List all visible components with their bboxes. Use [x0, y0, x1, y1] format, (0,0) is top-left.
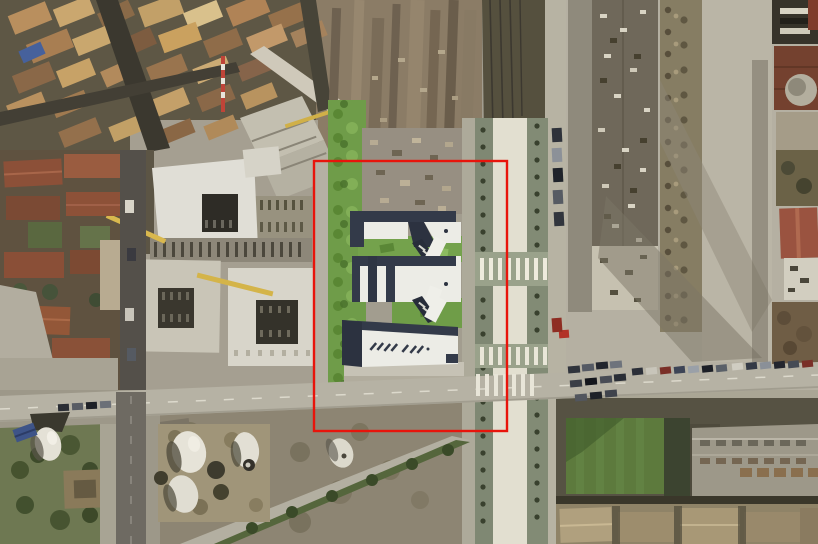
- scrub-mottle: [290, 442, 310, 462]
- screenshot-root: [0, 0, 818, 544]
- scrub-dot: [665, 183, 671, 189]
- white-house-mark: [800, 278, 809, 283]
- park-tree: [11, 461, 29, 479]
- edge-roof-bar: [780, 28, 810, 34]
- shed-speck: [600, 14, 607, 18]
- render-building-c-box: [446, 354, 458, 363]
- rubble-speck: [415, 200, 425, 205]
- shed-speck-dark: [634, 54, 641, 59]
- parked-car: [552, 148, 563, 163]
- park-tree: [82, 507, 98, 523]
- parked-car-row: [688, 365, 700, 373]
- parked-car: [554, 212, 565, 227]
- tree-blob: [42, 284, 58, 300]
- tree-dot: [534, 310, 539, 315]
- tree-dot: [480, 246, 485, 251]
- zebra-stripe: [476, 374, 480, 396]
- scrub-dot: [680, 66, 687, 73]
- park-tree: [16, 496, 34, 514]
- roof-window: [796, 458, 806, 464]
- hedge-tree: [366, 474, 378, 486]
- grid-tick: [260, 200, 263, 210]
- parked-car: [575, 393, 588, 401]
- tree-dot: [534, 412, 539, 417]
- render-building-a-roof: [364, 222, 408, 239]
- scrub-dot: [680, 91, 687, 98]
- boulevard-roadway: [493, 118, 527, 544]
- tree-blob: [154, 471, 168, 485]
- zebra-stripe: [498, 258, 502, 280]
- parked-car: [570, 379, 583, 387]
- railyard-rubble: [398, 58, 405, 62]
- grid-tick: [163, 242, 166, 257]
- rubble-speck: [430, 155, 438, 160]
- hedge-tree: [406, 458, 418, 470]
- parked-car: [72, 403, 83, 411]
- scrub-dot-light: [674, 98, 679, 103]
- courtyard-window: [278, 330, 281, 337]
- grid-tick: [199, 242, 202, 257]
- grass-mottle: [333, 109, 343, 119]
- roof-vent: [444, 282, 448, 286]
- courtyard-window: [178, 314, 181, 322]
- parked-car: [86, 402, 97, 410]
- house-roof-south: [800, 508, 818, 544]
- rubble-speck: [392, 150, 402, 156]
- grass-mottle: [340, 220, 348, 228]
- shed-speck: [602, 184, 609, 188]
- parked-car: [125, 308, 134, 321]
- scrub-dot-light: [674, 182, 679, 187]
- courtyard-window: [260, 306, 263, 313]
- shed-shadow: [568, 0, 592, 312]
- shed-speck-dark: [610, 38, 617, 43]
- roof-window: [700, 458, 710, 464]
- courtyard-window: [260, 330, 263, 337]
- park-courtyard-inner: [74, 480, 97, 499]
- rubble-speck: [438, 206, 446, 211]
- facade-speck: [234, 350, 238, 356]
- tree-dot: [480, 178, 485, 183]
- roof-window: [748, 458, 758, 464]
- grid-tick: [276, 222, 279, 232]
- shed-speck: [598, 128, 605, 132]
- roof-vent: [444, 229, 448, 233]
- facade-speck: [258, 350, 262, 356]
- grid-tick: [253, 242, 256, 257]
- scrub-dot-light: [674, 210, 679, 215]
- tree-dot: [534, 327, 539, 332]
- shed-speck: [604, 54, 611, 58]
- parked-car-row: [760, 361, 772, 369]
- grid-tick: [292, 200, 295, 210]
- parked-car-row: [788, 360, 800, 368]
- grid-tick: [289, 242, 292, 257]
- grid-tick: [154, 242, 157, 257]
- shed-speck-dark: [600, 78, 607, 83]
- grass-mottle: [346, 122, 358, 134]
- tree-dot: [534, 480, 539, 485]
- tree-dot: [534, 225, 539, 230]
- roof-window: [748, 440, 758, 446]
- roof-ridge: [66, 204, 122, 206]
- grid-tick: [226, 242, 229, 257]
- parked-car: [100, 401, 111, 409]
- zebra-stripe: [543, 258, 547, 280]
- tree-dot: [480, 297, 485, 302]
- scrub-dot: [680, 241, 687, 248]
- tree-dot: [480, 331, 485, 336]
- shed-speck: [620, 28, 627, 32]
- house-roof: [6, 196, 60, 220]
- crane-mast-stripe: [221, 64, 225, 70]
- grid-tick: [172, 242, 175, 257]
- tree-dot: [480, 127, 485, 132]
- parked-car: [127, 248, 136, 261]
- scrub-dot: [665, 51, 671, 57]
- roof-vent: [427, 348, 430, 351]
- rubble-speck: [376, 170, 385, 175]
- courtyard-window: [213, 220, 216, 228]
- scrub-dot: [665, 227, 671, 233]
- grid-tick: [190, 242, 193, 257]
- parked-car: [596, 361, 609, 369]
- grid-tick: [284, 222, 287, 232]
- courtyard-window: [170, 292, 173, 300]
- shed-speck: [614, 94, 621, 98]
- house-roof: [64, 154, 120, 178]
- parked-car: [553, 190, 564, 205]
- roof-ridge: [680, 524, 740, 526]
- grid-tick: [300, 222, 303, 232]
- scrub-dot-light: [674, 238, 679, 243]
- tree-dot: [480, 450, 485, 455]
- courtyard-garden: [28, 222, 62, 248]
- shed-speck: [640, 168, 646, 172]
- courtyard-window: [170, 314, 173, 322]
- tree-dot: [480, 195, 485, 200]
- grid-tick: [300, 200, 303, 210]
- shed-speck: [630, 68, 637, 72]
- hedge-tree: [286, 506, 298, 518]
- shed-speck: [622, 148, 629, 152]
- field-mottle: [249, 498, 263, 512]
- tree-dot: [534, 429, 539, 434]
- tree-dot: [534, 157, 539, 162]
- hedge-tree: [442, 444, 454, 456]
- zebra-stripe: [516, 347, 520, 365]
- grass-mottle: [340, 300, 348, 308]
- park-tree: [60, 435, 80, 455]
- zebra-stripe: [534, 258, 538, 280]
- shed-speck-dark: [630, 188, 637, 193]
- facade-speck: [246, 350, 250, 356]
- scrub-dot-light: [674, 14, 679, 19]
- parked-car: [127, 348, 136, 361]
- roof-window: [780, 458, 790, 464]
- white-house-mark: [788, 288, 795, 292]
- tree-dot: [534, 463, 539, 468]
- parked-car: [590, 391, 603, 399]
- lawn-stripe: [636, 418, 644, 494]
- zebra-stripe: [494, 374, 498, 396]
- rubble-speck: [400, 180, 410, 186]
- rubble-speck: [442, 186, 451, 191]
- shed-speck: [628, 204, 635, 208]
- tree-dot: [480, 518, 485, 523]
- tree-blob: [207, 461, 225, 479]
- tree-dot: [534, 242, 539, 247]
- tree-dot: [480, 416, 485, 421]
- scrub-dot-light: [674, 42, 679, 47]
- courtyard-window: [205, 220, 208, 228]
- grid-tick: [276, 200, 279, 210]
- scrub-dot: [680, 16, 687, 23]
- house-gap: [612, 506, 620, 544]
- grid-tick: [235, 242, 238, 257]
- grass-mottle: [340, 140, 348, 148]
- courtyard-window: [221, 220, 224, 228]
- courtyard-window: [178, 292, 181, 300]
- courtyard-window: [269, 330, 272, 337]
- scrub-dot: [665, 249, 671, 255]
- brick-line: [774, 66, 818, 68]
- brown-texture: [783, 341, 797, 355]
- shed-speck: [640, 10, 646, 14]
- hedge-dark: [664, 418, 690, 498]
- roof-window: [716, 440, 726, 446]
- zebra-stripe: [480, 258, 484, 280]
- facade-speck: [294, 350, 298, 356]
- parked-car: [614, 373, 627, 381]
- parked-car-row: [716, 364, 728, 372]
- grid-tick: [280, 242, 283, 257]
- tree-dot: [534, 123, 539, 128]
- house-roof-south: [744, 512, 802, 542]
- parked-car-row: [774, 361, 786, 369]
- grid-tick: [268, 200, 271, 210]
- zebra-stripe: [489, 258, 493, 280]
- shed-speck-dark: [610, 290, 618, 295]
- tree-blob: [781, 161, 795, 175]
- railyard-rubble: [438, 50, 445, 54]
- shed-speck-dark: [640, 138, 647, 143]
- pale-building: [776, 112, 818, 150]
- white-wing: [243, 146, 282, 178]
- grass-mottle: [340, 180, 348, 188]
- grass-mottle: [333, 349, 343, 359]
- zebra-stripe: [516, 258, 520, 280]
- grid-tick: [292, 222, 295, 232]
- tree-dot: [480, 314, 485, 319]
- scrub-dot: [665, 29, 671, 35]
- grass-mottle: [340, 260, 348, 268]
- courtyard-window: [278, 306, 281, 313]
- tree-dot: [480, 501, 485, 506]
- courtyard-window: [186, 292, 189, 300]
- parked-car-row: [646, 367, 658, 375]
- grid-tick: [181, 242, 184, 257]
- roof-window: [716, 458, 726, 464]
- scrub-dot: [680, 216, 687, 223]
- rubble-speck: [412, 138, 421, 143]
- railyard-rubble: [420, 88, 427, 92]
- glass-dome-inner: [788, 78, 806, 96]
- house-gap: [674, 506, 682, 544]
- rubble-speck: [380, 198, 389, 203]
- parked-car: [58, 404, 69, 412]
- grass-mottle: [333, 325, 343, 335]
- tree-dot: [534, 174, 539, 179]
- scrub-dot: [680, 266, 687, 273]
- cast-shadow-strip: [752, 60, 768, 362]
- grass-mottle: [333, 277, 343, 287]
- roof-window: [796, 440, 806, 446]
- scrub-dot: [665, 73, 671, 79]
- hedge-tree: [246, 522, 258, 534]
- parked-car: [568, 365, 581, 373]
- grid-tick: [271, 242, 274, 257]
- parked-car-row: [732, 362, 744, 370]
- house-roof-south: [618, 512, 674, 542]
- aerial-photo: [0, 0, 818, 544]
- boulevard-sidewalk-west: [462, 118, 475, 544]
- edge-roof-bar: [780, 18, 810, 24]
- parked-car-row: [674, 366, 686, 374]
- zebra-stripe: [489, 347, 493, 365]
- render-building-b-fin: [386, 256, 395, 302]
- courtyard-window: [269, 306, 272, 313]
- crane-mast-stripe: [221, 92, 225, 98]
- tree-dot: [480, 144, 485, 149]
- tree-dot: [480, 212, 485, 217]
- roof-window: [780, 440, 790, 446]
- grass-mottle: [333, 205, 343, 215]
- render-building-c-roof: [362, 330, 458, 367]
- parked-car: [552, 128, 563, 143]
- zebra-stripe: [530, 374, 534, 396]
- house-roof: [4, 252, 64, 278]
- parked-car: [610, 360, 623, 368]
- tree-dot: [534, 446, 539, 451]
- tree-dot: [534, 514, 539, 519]
- parked-car: [125, 200, 134, 213]
- house-gap: [738, 506, 746, 544]
- railyard-rubble: [372, 76, 378, 80]
- parked-car: [553, 168, 564, 183]
- tree-dot: [534, 293, 539, 298]
- roof-skylight: [808, 468, 818, 477]
- crane-mast-stripe: [221, 78, 225, 84]
- roof-window: [764, 440, 774, 446]
- parked-car-row: [746, 362, 758, 370]
- courtyard-green: [776, 150, 818, 206]
- roof-skylight: [757, 468, 769, 477]
- courtyard-window: [287, 306, 290, 313]
- roof-skylight: [740, 468, 752, 477]
- roof-window: [732, 458, 742, 464]
- facade-speck: [270, 350, 274, 356]
- zebra-stripe: [512, 374, 516, 396]
- tree-dot: [480, 484, 485, 489]
- tree-dot: [480, 467, 485, 472]
- render-building-b-fin: [368, 256, 377, 302]
- plaza-strip: [100, 424, 116, 544]
- south-street-dark: [556, 496, 818, 505]
- shed-speck: [644, 108, 650, 112]
- facade-speck: [282, 350, 286, 356]
- grid-tick: [284, 200, 287, 210]
- scrub-mottle: [411, 491, 429, 509]
- tree-dot: [534, 140, 539, 145]
- scrub-dot: [665, 205, 671, 211]
- tree-blob: [796, 178, 812, 194]
- park-tree: [50, 510, 70, 530]
- tree-dot: [534, 191, 539, 196]
- roof-skylight: [791, 468, 803, 477]
- grid-tick: [268, 222, 271, 232]
- zebra-stripe: [498, 347, 502, 365]
- render-building-b-fin: [352, 256, 360, 302]
- lawn-stripe: [616, 418, 624, 494]
- roof-window: [764, 458, 774, 464]
- east-sidewalk-top: [545, 0, 566, 132]
- courtyard-window: [287, 330, 290, 337]
- tank-hatch: [342, 454, 347, 459]
- hedge-tree: [326, 490, 338, 502]
- rubble-speck: [370, 140, 378, 145]
- parked-car-row: [802, 360, 814, 368]
- grid-tick: [262, 242, 265, 257]
- brown-texture: [796, 326, 812, 342]
- parked-car: [582, 363, 595, 371]
- zebra-stripe: [480, 347, 484, 365]
- courtyard-window: [162, 292, 165, 300]
- scrub-dot: [680, 41, 687, 48]
- rubble-speck: [445, 142, 453, 147]
- scrub-dot: [665, 7, 671, 13]
- zebra-stripe: [521, 374, 525, 396]
- grid-tick: [244, 242, 247, 257]
- tree-dot: [534, 208, 539, 213]
- brown-texture: [777, 311, 791, 325]
- scrub-dot-light: [674, 70, 679, 75]
- railyard-rubble: [380, 118, 387, 122]
- courtyard-window: [186, 314, 189, 322]
- parked-car: [600, 375, 613, 383]
- roof-window: [700, 440, 710, 446]
- zebra-stripe: [525, 258, 529, 280]
- courtyard-window: [229, 220, 232, 228]
- parked-car: [585, 377, 598, 385]
- tree-dot: [480, 229, 485, 234]
- render-building-c-side: [342, 320, 362, 367]
- courtyard-window: [162, 314, 165, 322]
- parked-car: [552, 318, 563, 333]
- parked-car-row: [660, 366, 672, 374]
- zebra-stripe: [525, 347, 529, 365]
- zebra-stripe: [534, 347, 538, 365]
- grass-mottle: [333, 229, 343, 239]
- white-house-mark: [790, 266, 798, 271]
- grid-tick: [208, 242, 211, 257]
- edge-red-roof: [808, 0, 818, 30]
- grid-tick: [260, 222, 263, 232]
- tree-blob: [213, 484, 229, 500]
- parked-car-row: [702, 365, 714, 373]
- railyard-rubble: [452, 96, 458, 100]
- parked-car-row: [632, 367, 644, 375]
